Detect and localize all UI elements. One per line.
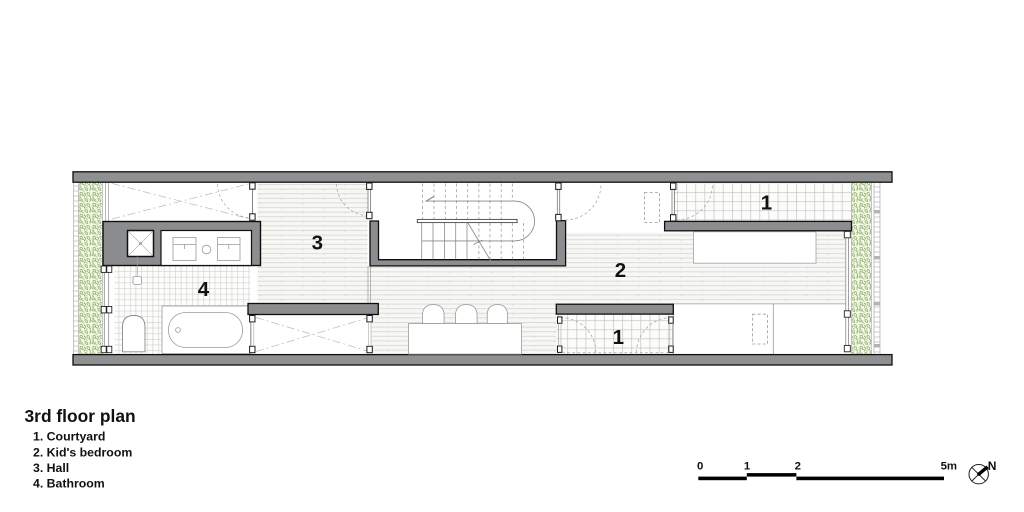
svg-text:0: 0 <box>697 461 703 473</box>
svg-text:2: 2 <box>615 259 626 282</box>
svg-text:3rd floor plan: 3rd floor plan <box>25 406 136 426</box>
svg-text:4: 4 <box>198 278 210 301</box>
svg-text:1: 1 <box>761 192 772 215</box>
svg-text:1: 1 <box>744 461 751 473</box>
svg-text:3. Hall: 3. Hall <box>33 461 69 475</box>
svg-text:1. Courtyard: 1. Courtyard <box>33 430 105 444</box>
svg-text:1: 1 <box>613 326 624 349</box>
svg-text:2: 2 <box>795 461 801 473</box>
svg-text:3: 3 <box>312 232 323 255</box>
svg-text:N: N <box>988 459 997 473</box>
svg-text:4. Bathroom: 4. Bathroom <box>33 476 105 490</box>
svg-text:5m: 5m <box>941 461 957 473</box>
svg-text:2. Kid's bedroom: 2. Kid's bedroom <box>33 445 132 459</box>
